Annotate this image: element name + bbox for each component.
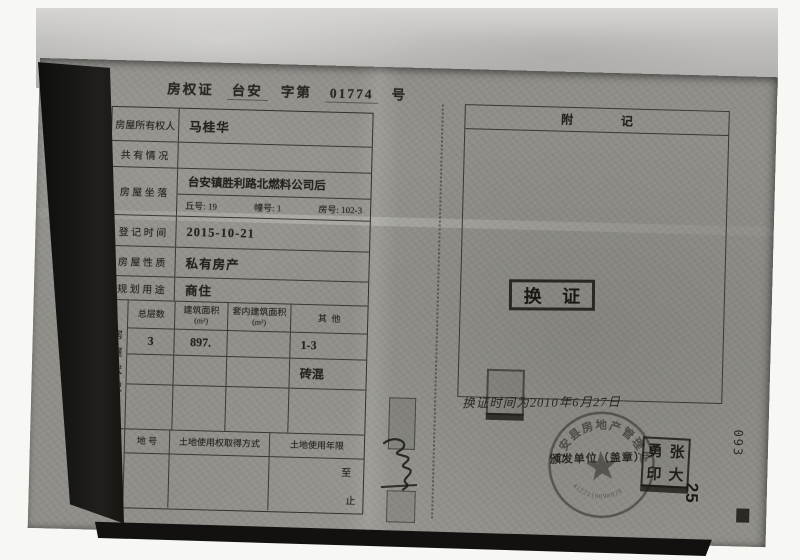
svg-text:4122210098828: 4122210098828 bbox=[571, 478, 625, 502]
row-location: 房 屋 坐 落 台安镇胜利路北燃料公司后 丘号: 19 幢号: 1 房号: 10… bbox=[110, 167, 371, 222]
building-no: 幢号: 1 bbox=[254, 201, 282, 215]
reg-date-label: 登 记 时 间 bbox=[109, 215, 177, 247]
name-seal-char-2: 张 bbox=[666, 440, 689, 464]
floors-value-2 bbox=[126, 354, 174, 385]
title-number: 01774 bbox=[325, 85, 379, 103]
co-ownership-value bbox=[178, 143, 372, 173]
name-seal: 勇 张 印 大 bbox=[640, 436, 691, 488]
remarks-header: 附 记 bbox=[465, 105, 729, 136]
building-area-value: 897. bbox=[174, 330, 228, 357]
section-land-status: 土地状况 地 号 土地使用权取得方式 土地使用年限 至 止 bbox=[102, 429, 364, 514]
inner-area-value bbox=[227, 331, 291, 359]
inner-area-value-3 bbox=[225, 387, 289, 433]
usage-label: 规 划 用 途 bbox=[108, 276, 176, 301]
header-total-floors: 总层数 bbox=[128, 300, 176, 329]
header-building-area-unit: (m²) bbox=[194, 316, 208, 326]
land-acquisition-value bbox=[168, 455, 269, 511]
header-land-plot: 地 号 bbox=[125, 429, 171, 454]
land-status-grid: 地 号 土地使用权取得方式 土地使用年限 至 止 bbox=[123, 429, 364, 513]
header-land-acquisition: 土地使用权取得方式 bbox=[170, 431, 271, 458]
co-ownership-label: 共 有 情 况 bbox=[111, 141, 179, 168]
term-to: 止 bbox=[345, 492, 355, 507]
fold-dotted-line bbox=[431, 105, 444, 519]
exchange-stamp-text: 换 证 bbox=[524, 282, 589, 308]
header-other: 其 他 bbox=[291, 305, 368, 335]
term-from: 至 bbox=[341, 464, 351, 479]
title-series-label: 字第 bbox=[281, 80, 313, 101]
header-inner-area: 套内建筑面积 (m²) bbox=[228, 303, 292, 333]
certificate-exchange-stamp: 换 证 bbox=[509, 279, 595, 310]
certificate-page: 房权证 台安 字第 01774 号 房屋所有权人 马桂华 共 有 情 况 房 屋… bbox=[28, 58, 778, 547]
location-label: 房 屋 坐 落 bbox=[110, 167, 178, 216]
floors-value-3 bbox=[125, 384, 173, 429]
other-value-3 bbox=[288, 389, 365, 435]
stamp-date-strip bbox=[486, 413, 524, 421]
room-no: 房号: 102-3 bbox=[318, 203, 362, 217]
round-seal-serial: 4122210098828 bbox=[571, 478, 625, 502]
location-cells: 台安镇胜利路北燃料公司后 丘号: 19 幢号: 1 房号: 102-3 bbox=[177, 169, 371, 221]
other-value-1: 1-3 bbox=[290, 333, 367, 361]
building-area-value-2 bbox=[173, 356, 227, 387]
certificate-table: 房屋所有权人 马桂华 共 有 情 况 房 屋 坐 落 台安镇胜利路北燃料公司后 … bbox=[101, 106, 373, 515]
building-area-value-3 bbox=[172, 386, 226, 431]
header-building-area-text: 建筑面积 bbox=[183, 305, 219, 317]
issuer-label: 颁发单位（盖章） bbox=[550, 448, 646, 467]
side-archive-number: 093 bbox=[731, 429, 746, 457]
inner-area-value-2 bbox=[226, 357, 290, 389]
handwritten-note: 换证时间为2010年6月27日 bbox=[462, 390, 702, 411]
name-seal-char-3: 印 bbox=[642, 461, 665, 485]
page-number: 25 bbox=[681, 482, 702, 503]
house-status-grid: 总层数 建筑面积 (m²) 套内建筑面积 (m²) 其 他 3 897. 1-3… bbox=[125, 300, 367, 434]
header-inner-area-text: 套内建筑面积 bbox=[232, 306, 286, 318]
header-inner-area-unit: (m²) bbox=[252, 318, 266, 328]
owner-value: 马桂华 bbox=[179, 109, 373, 147]
title-region: 台安 bbox=[227, 79, 269, 101]
handwritten-signature bbox=[375, 435, 429, 496]
reg-date-value: 2015-10-21 bbox=[176, 217, 370, 252]
section-house-status: 房屋状况 总层数 建筑面积 (m²) 套内建筑面积 (m²) 其 他 3 897… bbox=[104, 300, 367, 436]
header-land-term: 土地使用年限 bbox=[270, 433, 365, 459]
owner-label: 房屋所有权人 bbox=[112, 107, 180, 142]
land-plot-value bbox=[123, 453, 169, 507]
header-building-area: 建筑面积 (m²) bbox=[175, 302, 229, 331]
title-doc-type: 房权证 bbox=[167, 77, 214, 98]
scan-corner-mark bbox=[736, 508, 749, 522]
other-value-2: 砖混 bbox=[289, 359, 366, 391]
plot-no: 丘号: 19 bbox=[185, 199, 217, 213]
nature-value: 私有房产 bbox=[175, 248, 369, 282]
floors-value: 3 bbox=[127, 328, 175, 355]
remarks-box: 附 记 换 证 换证时间为2010年6月27日 bbox=[457, 104, 730, 404]
title-number-suffix: 号 bbox=[391, 83, 407, 103]
nature-label: 房 屋 性 质 bbox=[108, 246, 176, 277]
land-term-value: 至 止 bbox=[268, 457, 363, 512]
name-seal-char-1: 勇 bbox=[644, 438, 667, 462]
